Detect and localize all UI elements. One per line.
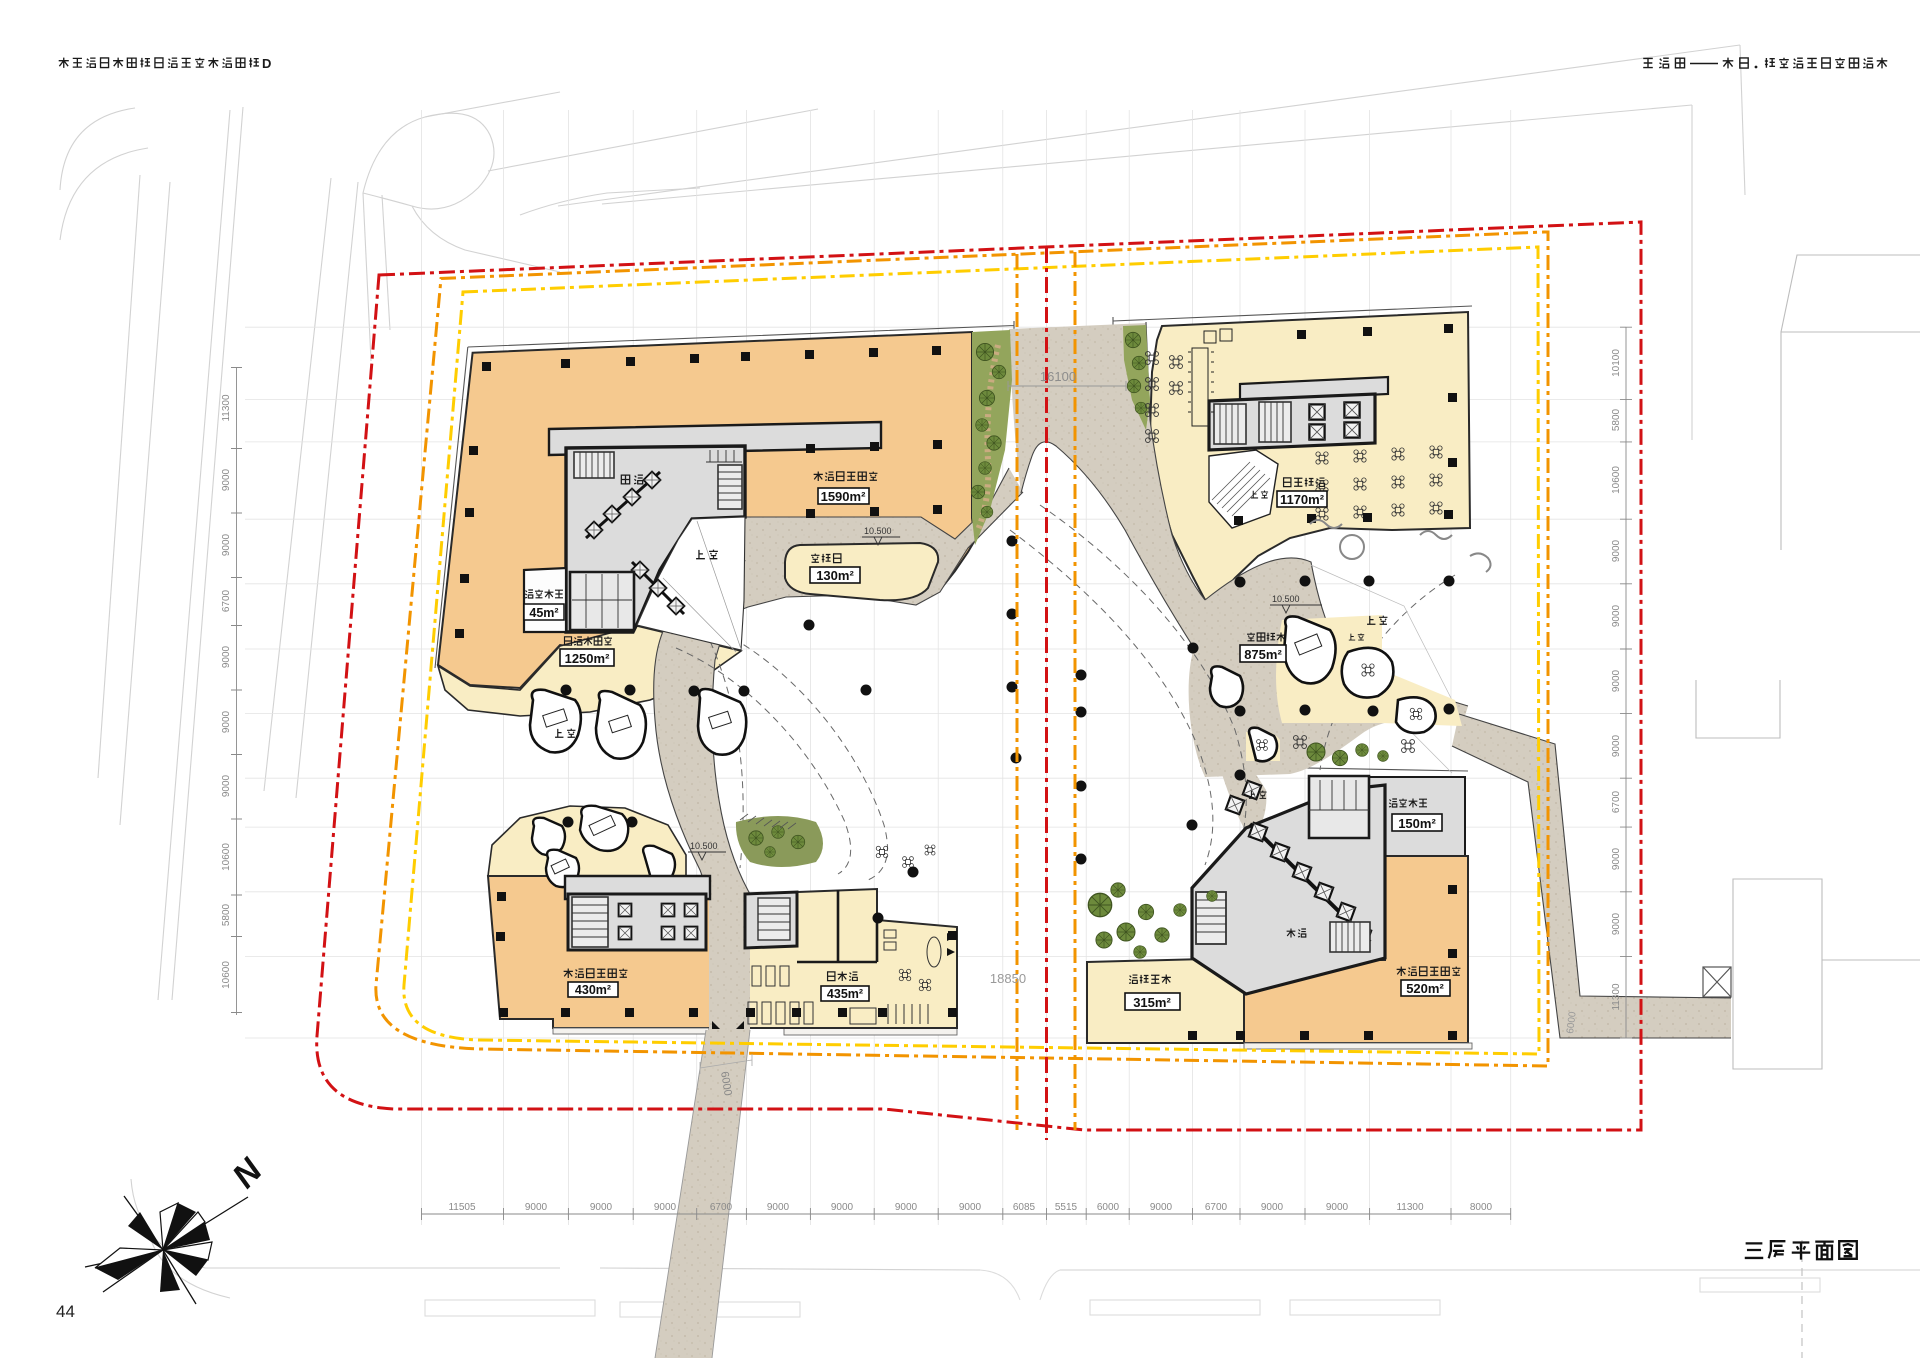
svg-text:9000: 9000 [221, 645, 232, 668]
svg-text:9000: 9000 [959, 1202, 982, 1213]
svg-text:9000: 9000 [590, 1202, 613, 1213]
svg-text:5515: 5515 [1055, 1202, 1078, 1213]
svg-text:5800: 5800 [1611, 408, 1622, 431]
svg-text:9000: 9000 [1326, 1202, 1349, 1213]
svg-text:9000: 9000 [1611, 912, 1622, 935]
svg-text:D: D [262, 56, 271, 71]
svg-text:10600: 10600 [1611, 466, 1622, 494]
svg-text:18850: 18850 [990, 971, 1026, 986]
svg-text:9000: 9000 [654, 1202, 677, 1213]
svg-text:11300: 11300 [221, 394, 232, 422]
svg-text:315m²: 315m² [1133, 995, 1171, 1010]
svg-text:9000: 9000 [767, 1202, 790, 1213]
svg-text:150m²: 150m² [1398, 816, 1436, 831]
svg-text:11505: 11505 [448, 1202, 476, 1213]
svg-text:5800: 5800 [221, 903, 232, 926]
svg-text:6700: 6700 [710, 1202, 733, 1213]
svg-text:1590m²: 1590m² [821, 489, 866, 504]
svg-text:16100: 16100 [1040, 369, 1076, 384]
svg-text:9000: 9000 [221, 533, 232, 556]
svg-text:11300: 11300 [1396, 1202, 1424, 1213]
svg-text:8000: 8000 [1470, 1202, 1493, 1213]
svg-text:9000: 9000 [1611, 669, 1622, 692]
svg-text:430m²: 430m² [575, 983, 611, 997]
svg-text:10.500: 10.500 [1272, 594, 1300, 604]
svg-text:9000: 9000 [831, 1202, 854, 1213]
svg-text:9000: 9000 [221, 468, 232, 491]
svg-text:6700: 6700 [1205, 1202, 1228, 1213]
svg-text:9000: 9000 [1611, 539, 1622, 562]
svg-text:1250m²: 1250m² [565, 651, 610, 666]
svg-text:6700: 6700 [1611, 790, 1622, 813]
svg-text:9000: 9000 [895, 1202, 918, 1213]
svg-text:875m²: 875m² [1244, 647, 1282, 662]
svg-text:10.500: 10.500 [864, 526, 892, 536]
svg-text:130m²: 130m² [816, 568, 854, 583]
svg-text:435m²: 435m² [827, 987, 863, 1001]
svg-text:44: 44 [56, 1302, 75, 1321]
svg-text:10100: 10100 [1611, 349, 1622, 377]
svg-text:9000: 9000 [221, 710, 232, 733]
svg-text:6700: 6700 [221, 589, 232, 612]
svg-text:9000: 9000 [1611, 604, 1622, 627]
svg-text:520m²: 520m² [1406, 981, 1444, 996]
svg-text:9000: 9000 [1611, 847, 1622, 870]
svg-text:6000: 6000 [1097, 1202, 1120, 1213]
svg-text:9000: 9000 [1611, 734, 1622, 757]
svg-text:1170m²: 1170m² [1280, 492, 1325, 507]
svg-text:10.500: 10.500 [690, 841, 718, 851]
svg-text:6085: 6085 [1013, 1202, 1036, 1213]
svg-text:9000: 9000 [1261, 1202, 1284, 1213]
svg-text:45m²: 45m² [529, 606, 558, 620]
svg-text:9000: 9000 [525, 1202, 548, 1213]
svg-text:11300: 11300 [1611, 983, 1622, 1011]
svg-text:10600: 10600 [221, 961, 232, 989]
svg-text:9000: 9000 [221, 774, 232, 797]
svg-text:9000: 9000 [1150, 1202, 1173, 1213]
svg-text:10600: 10600 [221, 843, 232, 871]
